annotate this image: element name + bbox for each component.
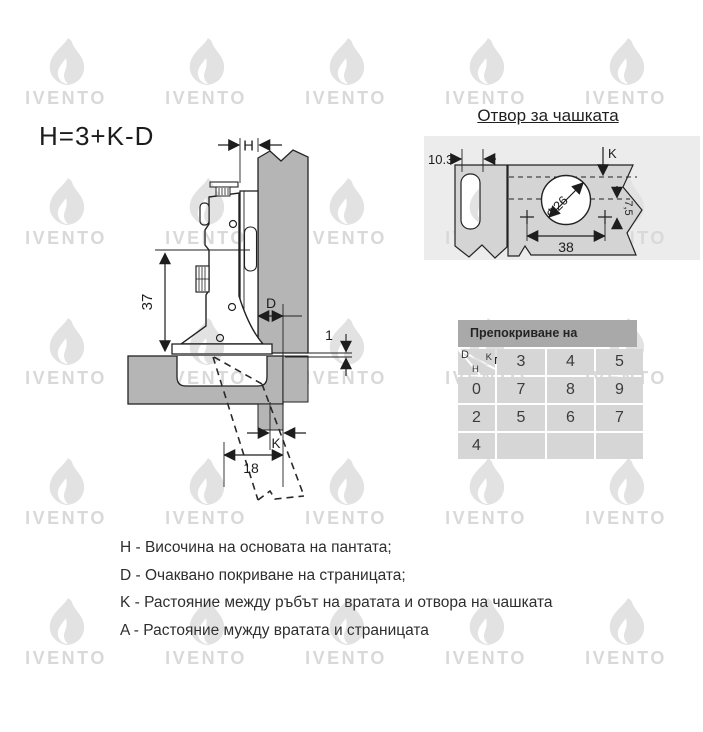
watermark-text: IVENTO: [305, 88, 387, 109]
flame-icon: [43, 458, 89, 506]
row-header: 0: [458, 377, 495, 403]
table-cell: [497, 433, 545, 459]
arm-tab: [200, 203, 209, 225]
corner-label-k: K: [486, 353, 492, 363]
screw-hole: [230, 221, 237, 228]
corner-label-d: D: [461, 350, 469, 361]
dim-k-label: K: [271, 436, 280, 451]
watermark-text: IVENTO: [25, 88, 107, 109]
legend-line-k: K - Растояние между ръбът на вратата и о…: [120, 589, 553, 617]
watermark: IVENTO: [0, 172, 136, 312]
cup-hole-title: Отвор за чашката: [455, 106, 641, 126]
watermark-text: IVENTO: [165, 88, 247, 109]
cup-recess: [177, 356, 267, 386]
flame-icon: [43, 318, 89, 366]
flame-icon: [603, 458, 649, 506]
dim-h-label: H: [243, 138, 254, 155]
legend: H - Височина на основата на пантата; D -…: [120, 534, 553, 644]
flame-icon: [603, 598, 649, 646]
row-header: 4: [458, 433, 495, 459]
watermark-text: IVENTO: [445, 648, 527, 669]
overlay-table-title: Препокриване на вратичката: [458, 320, 637, 347]
watermark-text: IVENTO: [305, 508, 387, 529]
watermark: IVENTO: [0, 452, 136, 592]
flame-icon: [463, 38, 509, 86]
table-cell: 7: [596, 405, 643, 431]
dim-18-label: 18: [243, 460, 259, 476]
dim-d-label: D: [266, 295, 276, 311]
watermark-text: IVENTO: [165, 508, 247, 529]
hinge-section-drawing: H 37 D 1 K 18: [120, 130, 360, 510]
flame-icon: [43, 178, 89, 226]
watermark-text: IVENTO: [585, 648, 667, 669]
dim-37-label: 37: [139, 294, 156, 311]
watermark-text: IVENTO: [445, 508, 527, 529]
table-corner-cell: D K H: [458, 349, 495, 375]
column-header: 3: [497, 349, 545, 375]
flame-icon: [603, 38, 649, 86]
dim-k2-label: K: [608, 146, 617, 161]
watermark-text: IVENTO: [585, 508, 667, 529]
panel-slot: [461, 174, 480, 229]
watermark-text: IVENTO: [25, 228, 107, 249]
watermark: IVENTO: [556, 592, 696, 732]
watermark: IVENTO: [0, 312, 136, 452]
watermark-text: IVENTO: [25, 368, 107, 389]
column-header: 4: [547, 349, 594, 375]
table-cell: 7: [497, 377, 545, 403]
top-screw-head: [210, 182, 238, 187]
watermark-text: IVENTO: [25, 508, 107, 529]
table-cell: 8: [547, 377, 594, 403]
column-header: 5: [596, 349, 643, 375]
screw-hole: [229, 304, 236, 311]
watermark-text: IVENTO: [305, 648, 387, 669]
flame-icon: [43, 38, 89, 86]
watermark-text: IVENTO: [25, 648, 107, 669]
watermark-text: IVENTO: [165, 648, 247, 669]
panel-corner-patch: [283, 356, 308, 402]
table-cell: 5: [497, 405, 545, 431]
cup-flange: [172, 344, 272, 354]
table-cell: 6: [547, 405, 594, 431]
flame-icon: [183, 38, 229, 86]
corner-label-h: H: [472, 365, 479, 375]
legend-line-d: D - Очаквано покриване на страницата;: [120, 562, 553, 590]
watermark: IVENTO: [0, 592, 136, 732]
table-cell: [596, 433, 643, 459]
row-header: 2: [458, 405, 495, 431]
screw-hole: [217, 335, 224, 342]
table-cell: 9: [596, 377, 643, 403]
legend-line-h: H - Височина на основата на пантата;: [120, 534, 553, 562]
dim-gap-label: 1: [325, 327, 333, 343]
watermark: IVENTO: [556, 452, 696, 592]
flame-icon: [463, 458, 509, 506]
flame-icon: [323, 38, 369, 86]
dim-103-label: 10.3: [428, 152, 453, 167]
legend-line-a: A - Растояние мужду вратата и страницата: [120, 617, 553, 645]
overlay-table: Препокриване на вратичката D K H 3 4 5 0…: [458, 320, 637, 459]
dim-38-label: 38: [558, 239, 574, 255]
table-cell: [547, 433, 594, 459]
dim-75-label: 7,5: [622, 200, 634, 215]
flame-icon: [43, 598, 89, 646]
plate-slot: [245, 227, 257, 271]
